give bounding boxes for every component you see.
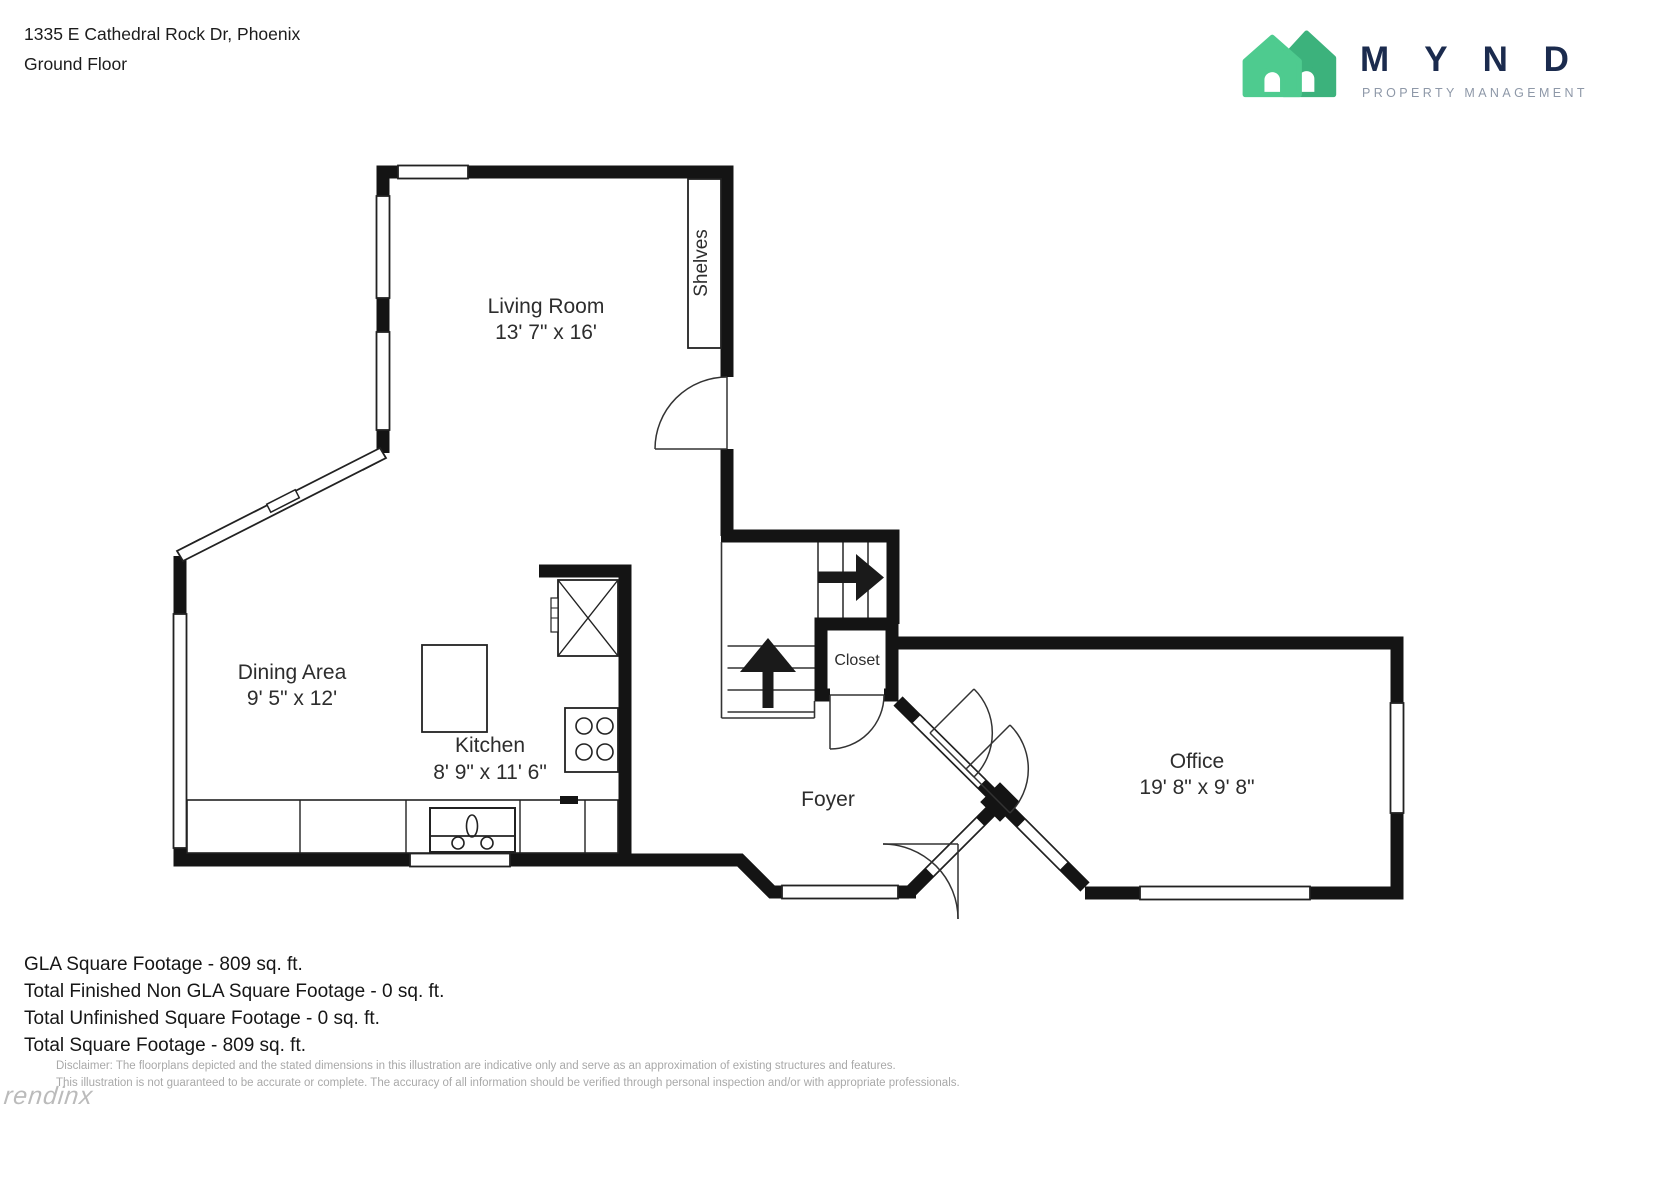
room-dims-kitchen: 8' 9" x 11' 6" — [433, 761, 547, 784]
stairs-direction-arrow-up-icon — [740, 638, 796, 708]
sink-icon — [430, 808, 515, 852]
window-foyer-bay — [782, 886, 898, 899]
door-arc-closet — [830, 695, 884, 749]
room-label-dining-area: Dining Area — [238, 661, 347, 684]
summary-unfinished: Total Unfinished Square Footage - 0 sq. … — [24, 1005, 444, 1032]
stove-icon — [565, 708, 618, 772]
summary-gla: GLA Square Footage - 809 sq. ft. — [24, 951, 444, 978]
window-office-bottom — [1140, 887, 1310, 900]
window-living-top — [398, 166, 468, 179]
room-label-office: Office — [1170, 750, 1224, 773]
square-footage-summary: GLA Square Footage - 809 sq. ft. Total F… — [24, 951, 444, 1059]
window-living-left-2 — [377, 332, 390, 430]
room-labels: Living Room 13' 7" x 16' Shelves Dining … — [238, 229, 1255, 811]
refrigerator-icon — [551, 580, 618, 656]
window-living-left-1 — [377, 196, 390, 298]
room-label-kitchen: Kitchen — [455, 734, 525, 757]
window-office-right — [1391, 703, 1404, 813]
floorplan-page: 1335 E Cathedral Rock Dr, Phoenix Ground… — [0, 0, 1680, 1188]
window-diagonal — [177, 448, 386, 561]
rendinx-watermark: rendinx — [2, 1082, 94, 1111]
summary-total: Total Square Footage - 809 sq. ft. — [24, 1032, 444, 1059]
room-dims-dining-area: 9' 5" x 12' — [247, 687, 337, 710]
disclaimer-line-2: This illustration is not guaranteed to b… — [56, 1075, 960, 1092]
stairs-direction-arrow-right-icon — [818, 554, 884, 601]
disclaimer: Disclaimer: The floorplans depicted and … — [56, 1058, 960, 1092]
room-label-living-room: Living Room — [488, 295, 605, 318]
disclaimer-line-1: Disclaimer: The floorplans depicted and … — [56, 1058, 960, 1075]
wall-living-room — [383, 172, 727, 536]
window-kitchen-bottom — [410, 854, 510, 867]
room-label-foyer: Foyer — [801, 788, 855, 811]
counter-marker — [560, 796, 578, 804]
room-dims-office: 19' 8" x 9' 8" — [1139, 776, 1254, 799]
room-label-closet: Closet — [834, 652, 880, 669]
shelves-label: Shelves — [691, 229, 712, 297]
door-arc-living-room — [655, 377, 727, 449]
kitchen-island — [422, 645, 487, 732]
window-dining-left — [174, 614, 187, 848]
stair-arrows — [740, 554, 884, 708]
summary-finished-non-gla: Total Finished Non GLA Square Footage - … — [24, 978, 444, 1005]
room-dims-living-room: 13' 7" x 16' — [495, 321, 597, 344]
kitchen-counter — [187, 796, 618, 853]
